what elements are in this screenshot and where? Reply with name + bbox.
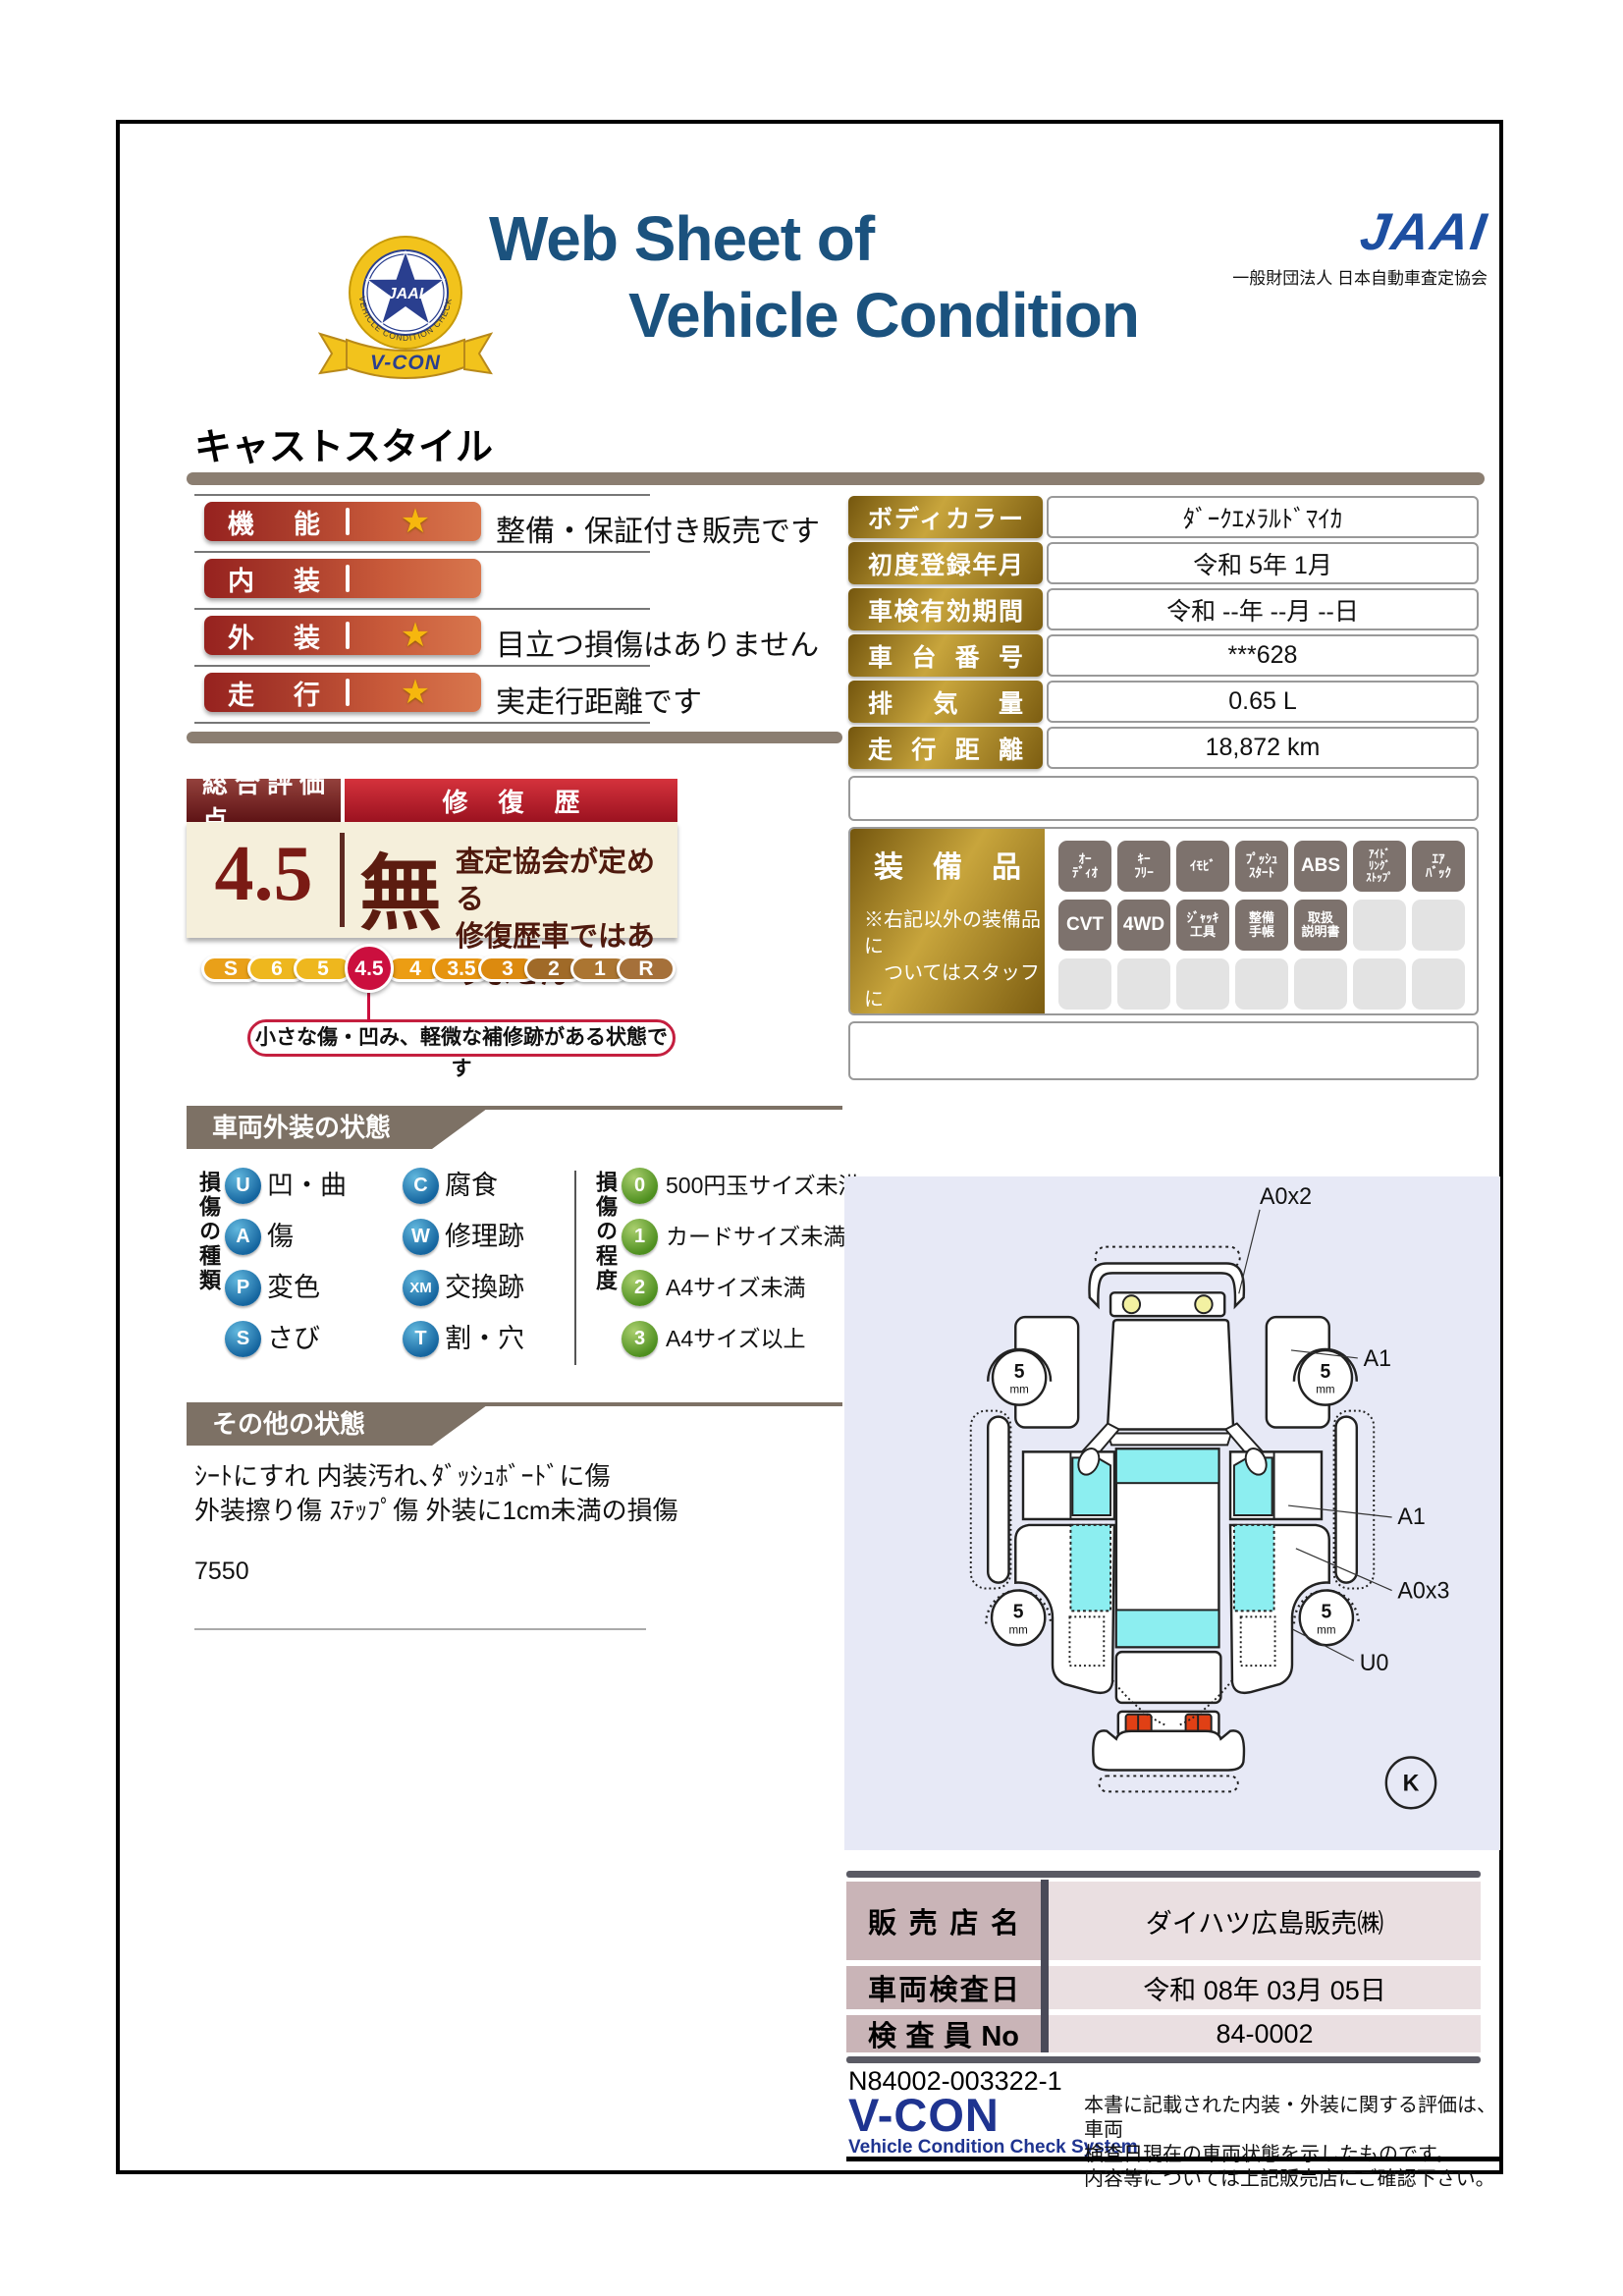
overall-score-body: 4.5 無 査定協会が定める 修復歴車ではありません: [187, 822, 677, 938]
equipment-note: ※右記以外の装備品に ついてはスタッフに お尋ねください。: [864, 907, 1045, 1015]
damage-label-a0x3: A0x3: [1397, 1577, 1449, 1603]
headlight-left-icon: [1123, 1295, 1140, 1313]
rear-door-lower-left: [1069, 1616, 1104, 1666]
rating-row-mileage: 走行★: [204, 673, 481, 712]
spec-label-mileage: 走行距離: [848, 727, 1043, 769]
grade-callout: 小さな傷・凹み、軽微な補修跡がある状態です: [247, 1019, 676, 1057]
inspection-date-value: 令和 08年 03月 05日: [1049, 1966, 1481, 2009]
equipment-badge-maintenance-book: 整備 手帳: [1235, 900, 1288, 951]
rating-row-function: 機能★: [204, 502, 481, 541]
inspector-no-label: 検査員No: [846, 2015, 1041, 2052]
spec-label-body-color: ボディカラー: [848, 496, 1043, 538]
spec-value-inspection-period: 令和 --年 --月 --日: [1047, 588, 1479, 630]
degree-label-0: 500円玉サイズ未満: [666, 1168, 861, 1204]
car-condition-diagram: 5 mm 5 mm 5 mm 5 mm K A0x2 A1 A1 A0x3 U0: [844, 1176, 1500, 1850]
equipment-badge-jack: ｼﾞｬｯｷ 工具: [1176, 900, 1229, 951]
equipment-header: 装備品 ※右記以外の装備品に ついてはスタッフに お尋ねください。: [850, 829, 1045, 1013]
other-state-code: 7550: [194, 1558, 249, 1586]
cowl: [1108, 1433, 1231, 1445]
star-icon: ★: [350, 502, 481, 541]
spec-label-displacement: 排気量: [848, 681, 1043, 723]
jaai-logo: JAAI 一般財団法人 日本自動車査定協会: [1193, 202, 1488, 289]
spec-value-first-registration: 令和 5年 1月: [1047, 542, 1479, 584]
spec-value-mileage: 18,872 km: [1047, 727, 1479, 769]
damage-label-u0: U0: [1360, 1650, 1389, 1675]
damage-label-a1-door: A1: [1397, 1503, 1425, 1529]
equipment-badge-4wd: 4WD: [1117, 900, 1170, 951]
rule: [194, 608, 650, 610]
equipment-badge-manual: 取扱 説明書: [1294, 900, 1347, 951]
star-icon: ★: [350, 673, 481, 712]
divider: [187, 732, 842, 743]
other-state-text: ｼｰﾄにすれ 内装汚れ､ﾀﾞｯｼｭﾎﾞｰﾄﾞに傷 外装擦り傷 ｽﾃｯﾌﾟ傷 外装…: [194, 1459, 678, 1528]
rear-door-window-right: [1234, 1525, 1274, 1611]
spec-label-inspection-period: 車検有効期間: [848, 588, 1043, 630]
degree-code-2: 2: [622, 1270, 658, 1306]
rating-description: 実走行距離です: [496, 678, 702, 721]
spec-value-body-color: ﾀﾞｰｸｴﾒﾗﾙﾄﾞﾏｲｶ: [1047, 496, 1479, 538]
vcon-badge-icon: VEHICLE CONDITION CHECK SYSTEM JAAI V-CO…: [312, 222, 499, 395]
spec-value-displacement: 0.65 L: [1047, 681, 1479, 723]
grade-letter: K: [1403, 1770, 1420, 1795]
wheel-tread-unit: mm: [1009, 1384, 1029, 1396]
degree-label-3: A4サイズ以上: [666, 1321, 805, 1357]
equipment-badge-empty: [1412, 958, 1465, 1010]
damage-label-a0x2: A0x2: [1260, 1183, 1312, 1209]
wheel-tread-unit: mm: [1316, 1384, 1335, 1396]
equipment-badge-empty: [1353, 958, 1406, 1010]
degree-code-0: 0: [622, 1168, 658, 1204]
damage-label-w: 修理跡: [445, 1219, 524, 1255]
roof-front-strip: [1116, 1449, 1219, 1483]
wheel-tread-value: 5: [1320, 1361, 1330, 1383]
equipment-badge-empty: [1294, 958, 1347, 1010]
table-border: [846, 2056, 1481, 2063]
damage-code-c: C: [403, 1168, 439, 1204]
rating-label: 外装: [204, 617, 320, 655]
damage-degree-title: 損傷の程度: [589, 1171, 621, 1293]
divider: [340, 833, 345, 927]
equipment-badge-empty: [1117, 958, 1170, 1010]
rule: [194, 722, 650, 724]
jaai-organization: 一般財団法人 日本自動車査定協会: [1193, 264, 1488, 289]
equipment-badge-keyfree: ｷｰ ﾌﾘｰ: [1117, 841, 1170, 892]
equipment-badge-abs: ABS: [1294, 841, 1347, 892]
disclaimer-text: 本書に記載された内装・外装に関する評価は、車両 検査日現在の車両状態を示したもの…: [1084, 2094, 1512, 2192]
damage-code-a: A: [225, 1219, 261, 1255]
damage-code-p: P: [225, 1270, 261, 1306]
table-border: [846, 1871, 1481, 1878]
divider: [346, 565, 350, 592]
wheel-tread-unit: mm: [1008, 1623, 1028, 1636]
inspection-date-label: 車両検査日: [846, 1966, 1041, 2009]
damage-label-t: 割・穴: [445, 1321, 524, 1357]
damage-label-a: 傷: [267, 1219, 294, 1255]
repair-history-header: 修復歴: [345, 779, 677, 822]
inspector-no-value: 84-0002: [1049, 2015, 1481, 2052]
rating-label: 内装: [204, 560, 320, 598]
rating-label: 走行: [204, 674, 320, 712]
rating-row-interior: 内装: [204, 559, 481, 598]
rear-door-window-left: [1070, 1525, 1110, 1611]
damage-label-a1-fender: A1: [1364, 1345, 1391, 1371]
rating-description: 目立つ損傷はありません: [496, 621, 819, 664]
wheel-tread-value: 5: [1321, 1601, 1331, 1622]
overall-score-header: 総合評価点: [187, 779, 341, 822]
wheel-tread-unit: mm: [1317, 1623, 1336, 1636]
degree-code-1: 1: [622, 1219, 658, 1255]
badge-star-text: JAAI: [388, 286, 424, 302]
equipment-badge-cvt: CVT: [1058, 900, 1111, 951]
equipment-badge-empty: [1176, 958, 1229, 1010]
roof-rear-strip: [1116, 1610, 1219, 1647]
rating-row-exterior: 外装★: [204, 616, 481, 655]
damage-code-w: W: [403, 1219, 439, 1255]
repair-history-title: 修復歴: [443, 783, 580, 819]
equipment-badge-airbag: ｴｱ ﾊﾞｯｸ: [1412, 841, 1465, 892]
damage-label-xm: 交換跡: [445, 1270, 524, 1306]
equipment-title: 装備品: [874, 843, 1021, 886]
callout-stem: [367, 993, 370, 1022]
rating-label: 機能: [204, 503, 320, 541]
jaai-logo-text: JAAI: [1357, 202, 1491, 262]
badge-ribbon-text: V-CON: [370, 352, 441, 374]
equipment-badge-audio: ｵｰ ﾃﾞｨｵ: [1058, 841, 1111, 892]
rating-description: 整備・保証付き販売です: [496, 507, 820, 550]
rule: [194, 665, 650, 667]
page-title-line2: Vehicle Condition: [628, 279, 1139, 352]
star-icon: ★: [350, 616, 481, 655]
equipment-badge-empty: [1353, 900, 1406, 951]
wheel-tread-value: 5: [1013, 1601, 1024, 1622]
repair-flag: 無: [359, 828, 442, 947]
damage-label-p: 変色: [267, 1270, 320, 1306]
spec-value-chassis-number: ***628: [1047, 634, 1479, 677]
sill-right: [1336, 1417, 1357, 1583]
rear-door-lower-right: [1241, 1616, 1275, 1666]
damage-code-xm: XM: [403, 1270, 439, 1306]
dealer-name-label: 販売店名: [846, 1882, 1041, 1960]
dealer-name-value: ダイハツ広島販売㈱: [1049, 1882, 1481, 1960]
overall-score-value: 4.5: [187, 830, 341, 919]
selected-grade-marker: 4.5: [345, 944, 394, 993]
degree-code-3: 3: [622, 1321, 658, 1357]
grade-segment-5: 5: [294, 956, 352, 982]
damage-code-s: S: [225, 1321, 261, 1357]
damage-label-u: 凹・曲: [267, 1168, 347, 1204]
divider: [187, 472, 1485, 485]
equipment-badge-pushstart: ﾌﾟｯｼｭ ｽﾀｰﾄ: [1235, 841, 1288, 892]
table-divider: [1041, 1880, 1049, 2052]
equipment-badge-immobilizer: ｲﾓﾋﾞ: [1176, 841, 1229, 892]
damage-label-s: さび: [267, 1321, 320, 1357]
degree-label-1: カードサイズ未満: [666, 1219, 845, 1255]
degree-label-2: A4サイズ未満: [666, 1270, 805, 1306]
rule: [846, 2157, 1502, 2161]
damage-code-t: T: [403, 1321, 439, 1357]
sill-left: [988, 1417, 1008, 1583]
equipment-badge-idlingstop: ｱｲﾄﾞ ﾘﾝｸﾞ ｽﾄｯﾌﾟ: [1353, 841, 1406, 892]
empty-spec-box: [848, 776, 1479, 821]
equipment-badge-empty: [1058, 958, 1111, 1010]
vehicle-name: キャストスタイル: [194, 416, 493, 470]
empty-remarks-box: [848, 1021, 1479, 1080]
rule: [194, 1628, 646, 1630]
divider: [574, 1171, 576, 1365]
spec-label-first-registration: 初度登録年月: [848, 542, 1043, 584]
windshield: [1108, 1320, 1233, 1429]
equipment-badge-empty: [1235, 958, 1288, 1010]
spec-label-chassis-number: 車台番号: [848, 634, 1043, 677]
damage-label-c: 腐食: [445, 1168, 498, 1204]
rule: [194, 494, 650, 496]
vcon-logo-text: V-CON: [848, 2088, 1000, 2142]
headlight-right-icon: [1195, 1295, 1212, 1313]
damage-kind-title: 損傷の種類: [192, 1171, 224, 1293]
equipment-badge-empty: [1412, 900, 1465, 951]
grade-segment-r: R: [617, 956, 676, 982]
rule: [194, 551, 650, 553]
rear-window: [1116, 1652, 1220, 1703]
equipment-section: 装備品 ※右記以外の装備品に ついてはスタッフに お尋ねください。 ｵｰ ﾃﾞｨ…: [848, 827, 1479, 1015]
page-title-line1: Web Sheet of: [489, 202, 874, 275]
wheel-tread-value: 5: [1014, 1361, 1025, 1383]
damage-code-u: U: [225, 1168, 261, 1204]
